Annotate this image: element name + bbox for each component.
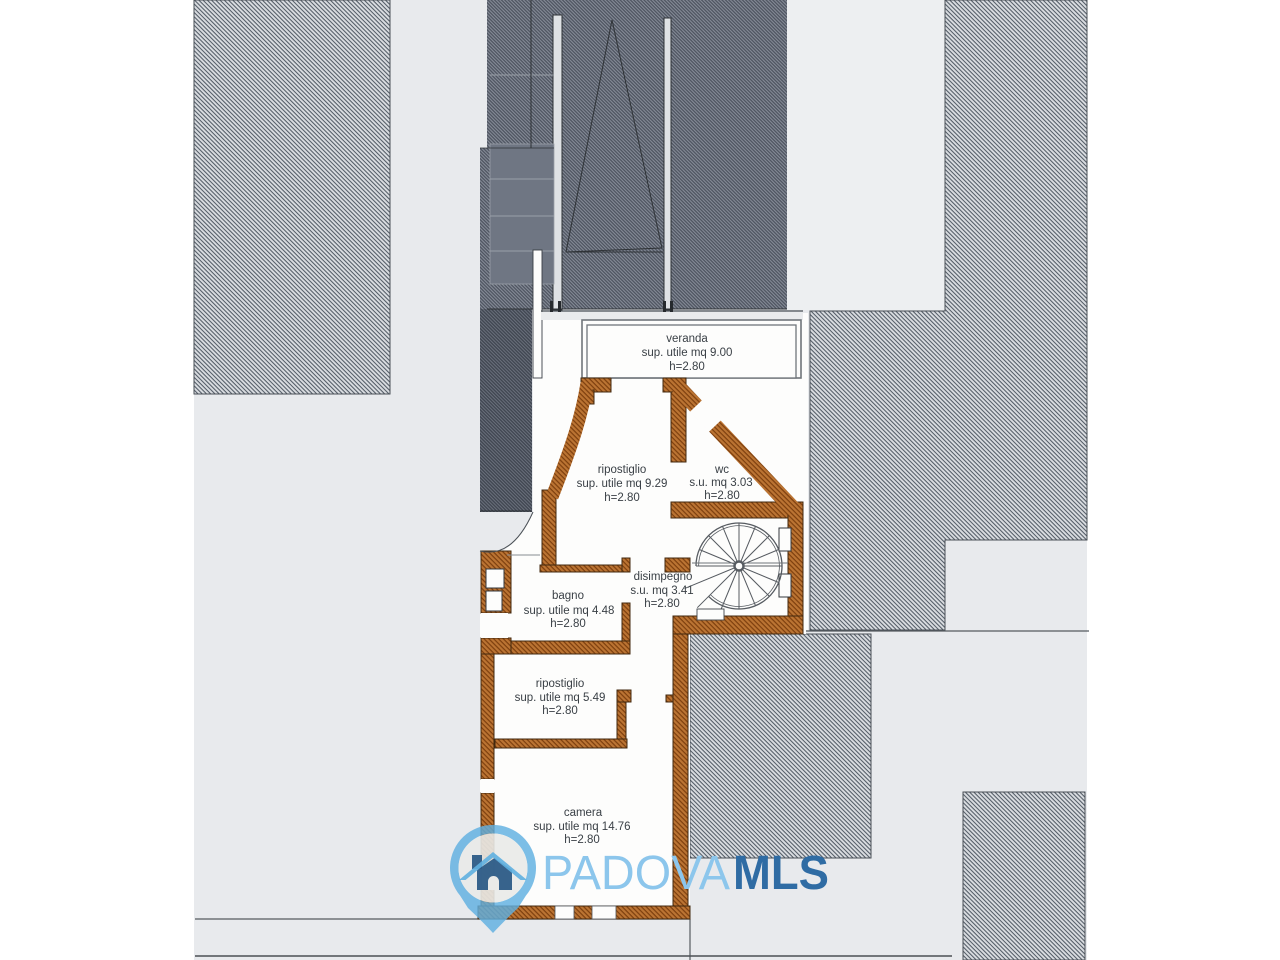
svg-text:sup. utile mq 9.29: sup. utile mq 9.29 xyxy=(577,478,668,490)
svg-text:camera: camera xyxy=(564,807,603,819)
svg-text:sup. utile mq 14.76: sup. utile mq 14.76 xyxy=(533,821,630,833)
svg-text:ripostiglio: ripostiglio xyxy=(598,464,647,476)
svg-text:PADOVA: PADOVA xyxy=(542,847,730,900)
svg-text:h=2.80: h=2.80 xyxy=(550,618,586,630)
svg-text:h=2.80: h=2.80 xyxy=(542,705,578,717)
svg-text:sup. utile mq 5.49: sup. utile mq 5.49 xyxy=(515,692,606,704)
svg-text:MLS: MLS xyxy=(733,847,829,900)
svg-text:s.u. mq 3.41: s.u. mq 3.41 xyxy=(630,585,693,597)
svg-text:veranda: veranda xyxy=(666,333,708,345)
svg-text:sup. utile mq 4.48: sup. utile mq 4.48 xyxy=(524,605,615,617)
svg-text:h=2.80: h=2.80 xyxy=(564,834,600,846)
svg-text:h=2.80: h=2.80 xyxy=(604,492,640,504)
svg-text:ripostiglio: ripostiglio xyxy=(536,678,585,690)
svg-text:sup. utile mq 9.00: sup. utile mq 9.00 xyxy=(642,347,733,359)
svg-text:disimpegno: disimpegno xyxy=(634,571,693,583)
svg-text:wc: wc xyxy=(714,464,729,476)
svg-text:s.u. mq 3.03: s.u. mq 3.03 xyxy=(689,477,752,489)
svg-text:h=2.80: h=2.80 xyxy=(669,361,705,373)
svg-text:h=2.80: h=2.80 xyxy=(704,490,740,502)
svg-text:bagno: bagno xyxy=(552,590,584,602)
svg-text:h=2.80: h=2.80 xyxy=(644,598,680,610)
